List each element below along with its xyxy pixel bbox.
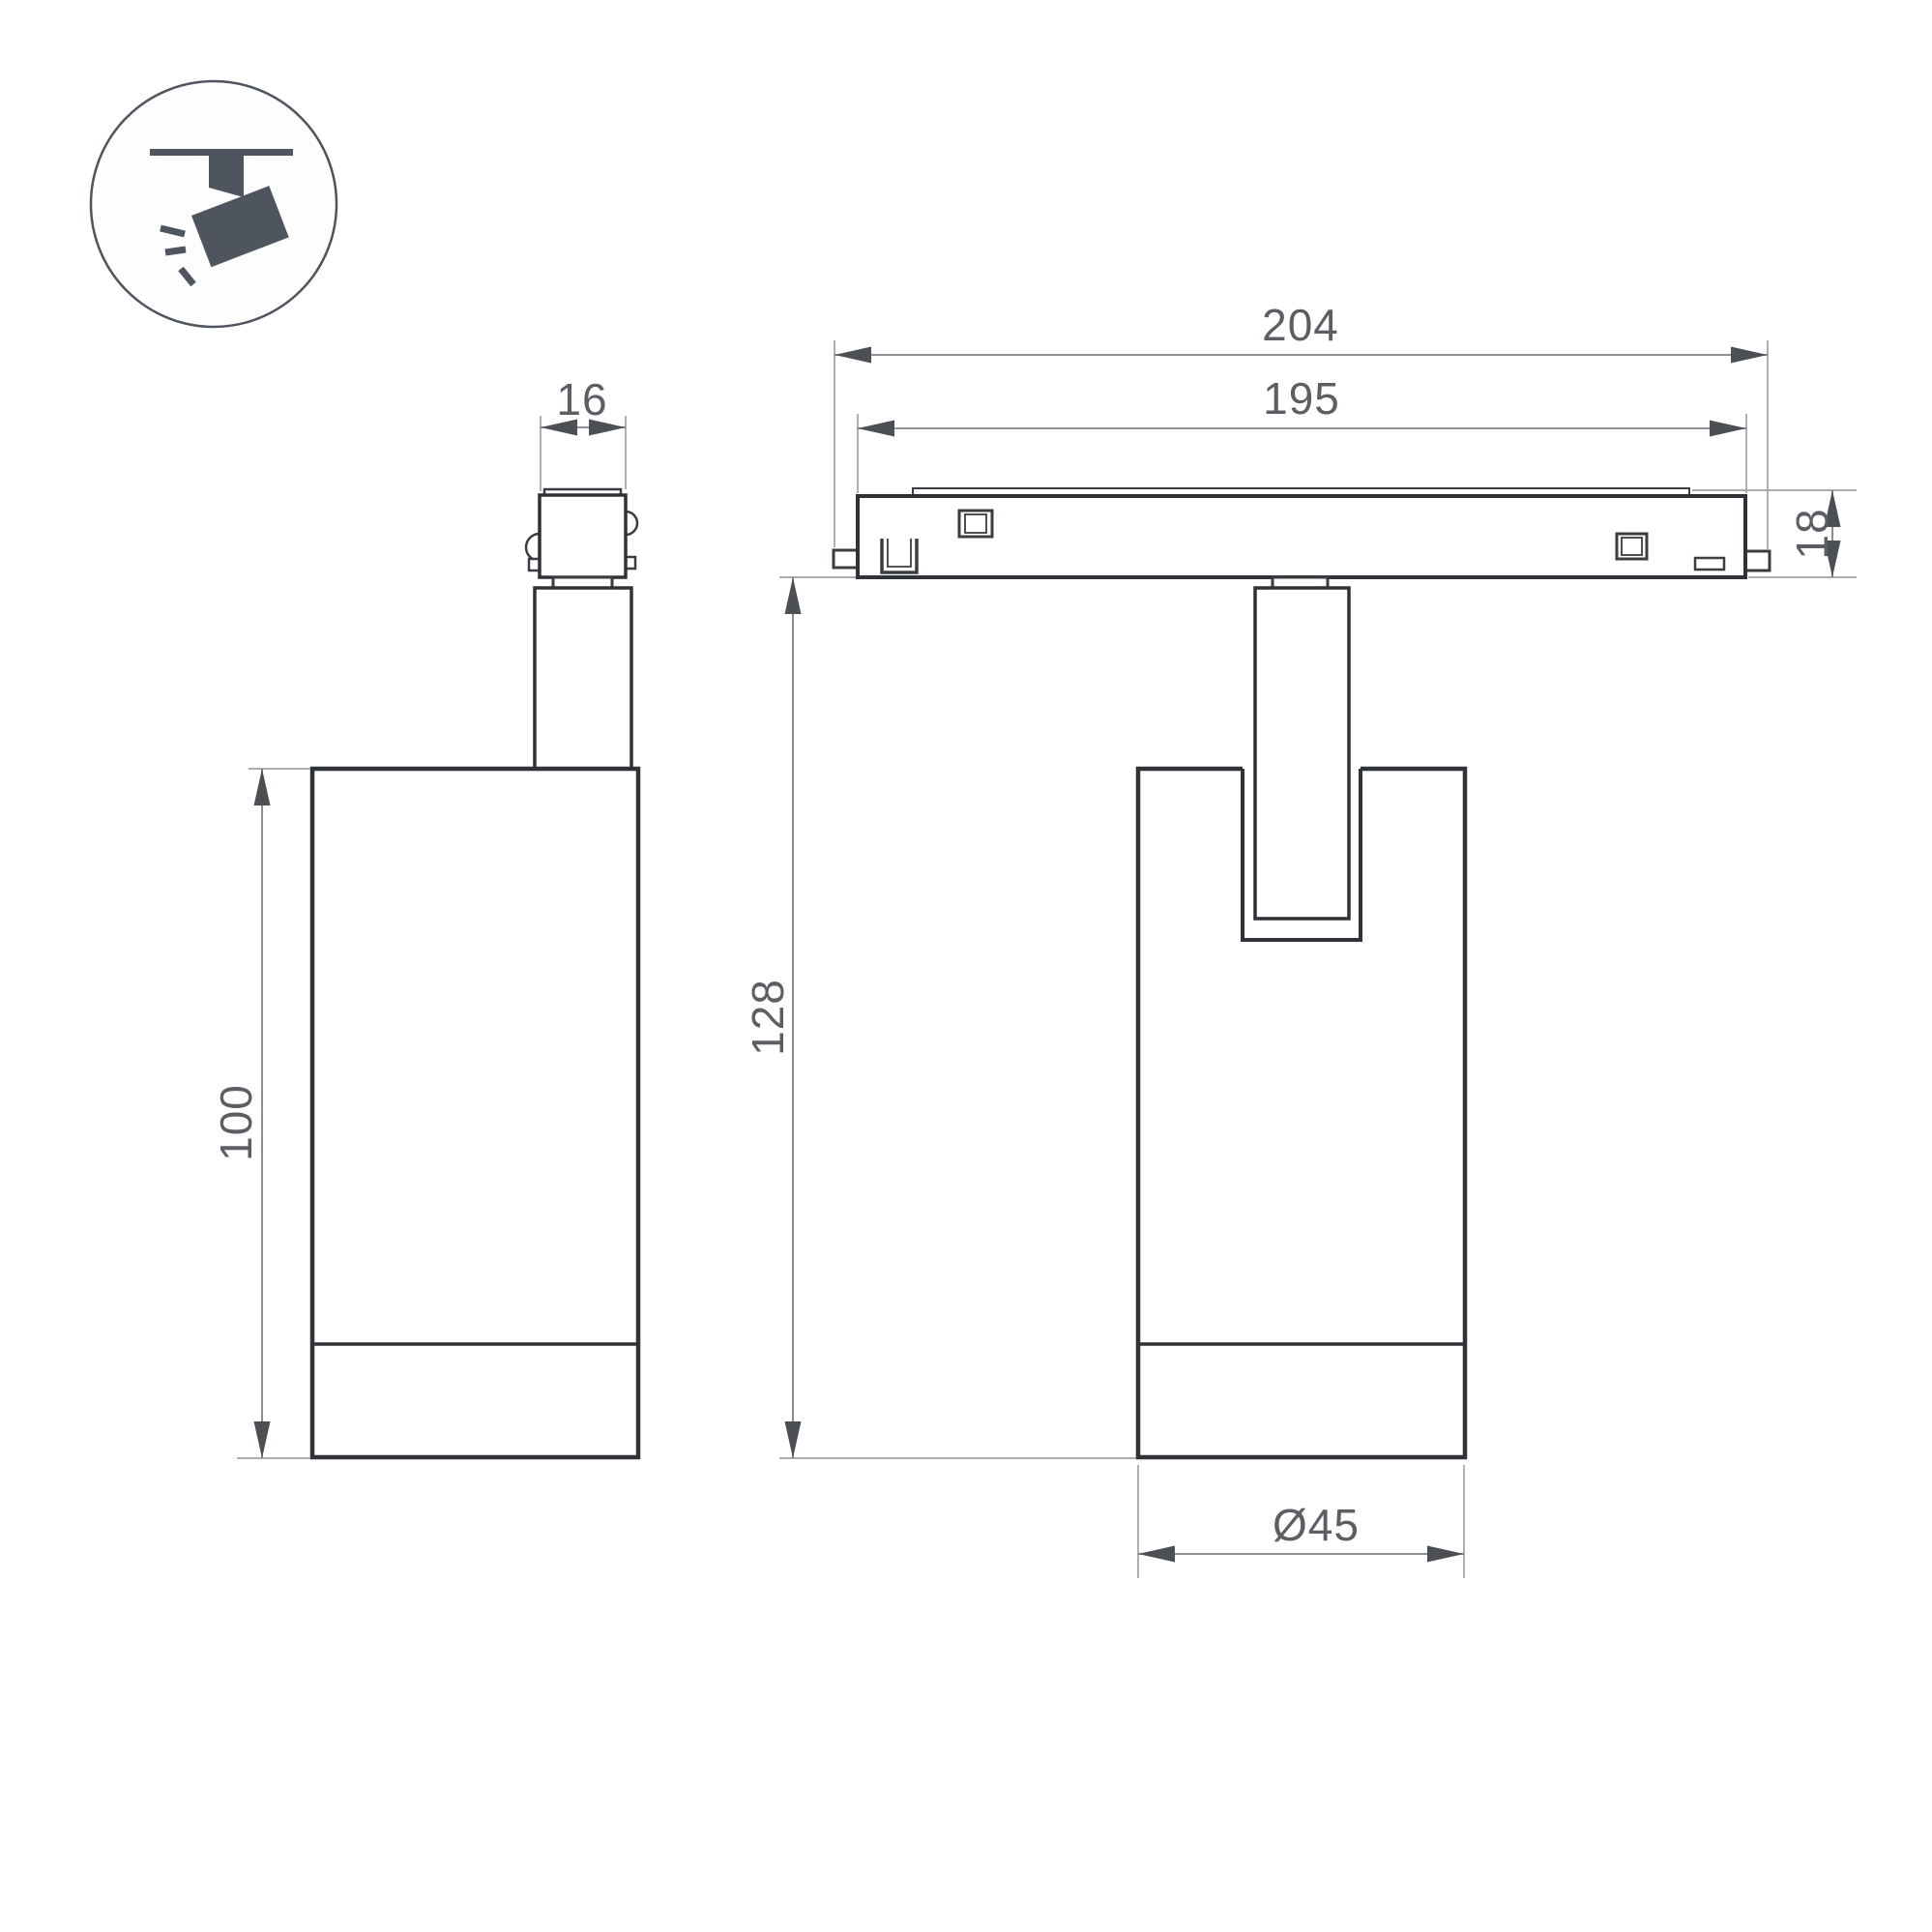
arrowhead-left — [1138, 1546, 1175, 1563]
track-end-tab-right — [1745, 551, 1770, 571]
dimension-label: 128 — [743, 979, 793, 1056]
dimension-adapter-width: 16 — [541, 374, 626, 491]
mount-type-icon — [91, 81, 337, 327]
light-ray — [165, 249, 186, 252]
arrowhead-left — [858, 421, 894, 437]
front-view — [834, 488, 1770, 1457]
track-end-tab-left — [834, 550, 858, 568]
dimension-body-diameter: Ø45 — [1138, 1465, 1464, 1578]
dimension-body-height: 100 — [211, 769, 310, 1458]
clip-left-inner — [965, 514, 986, 533]
adapter-bump-right — [626, 512, 637, 535]
track-clip-left — [959, 511, 992, 537]
arrowhead-right — [1710, 421, 1746, 437]
arrowhead-down — [785, 1421, 802, 1458]
track-slot-opening — [1695, 558, 1724, 570]
spotlight-body-side — [312, 769, 638, 1457]
dimension-label: 100 — [211, 1084, 261, 1161]
dimension-label: 195 — [1263, 373, 1340, 424]
ceiling-line — [150, 149, 293, 156]
dimension-label: 204 — [1262, 300, 1339, 350]
clip-right-inner — [1622, 538, 1642, 555]
dimension-label: 16 — [556, 374, 607, 424]
dimension-label: Ø45 — [1273, 1500, 1360, 1550]
track-adapter-side — [540, 495, 626, 577]
icon-circle — [91, 81, 337, 327]
clip-u-inner — [888, 539, 911, 567]
stem-front — [1255, 588, 1349, 919]
arrowhead-right — [1731, 347, 1768, 364]
stem-side — [535, 588, 631, 769]
dimension-label: 18 — [1787, 508, 1837, 559]
arrowhead-left — [834, 347, 871, 364]
arrowhead-down — [254, 1421, 271, 1458]
track-clip-right — [1617, 534, 1647, 559]
dimension-overall-height: 128 — [743, 577, 1136, 1458]
arrowhead-up — [785, 577, 802, 614]
arrowhead-up — [254, 769, 271, 805]
track-clip-u — [882, 539, 917, 572]
technical-drawing: 16 204 195 18 128 — [0, 0, 1932, 1932]
adapter-bump-left — [526, 534, 540, 561]
side-view — [312, 489, 638, 1457]
arrowhead-right — [1427, 1546, 1464, 1563]
dimension-track-body-length: 195 — [858, 373, 1746, 493]
